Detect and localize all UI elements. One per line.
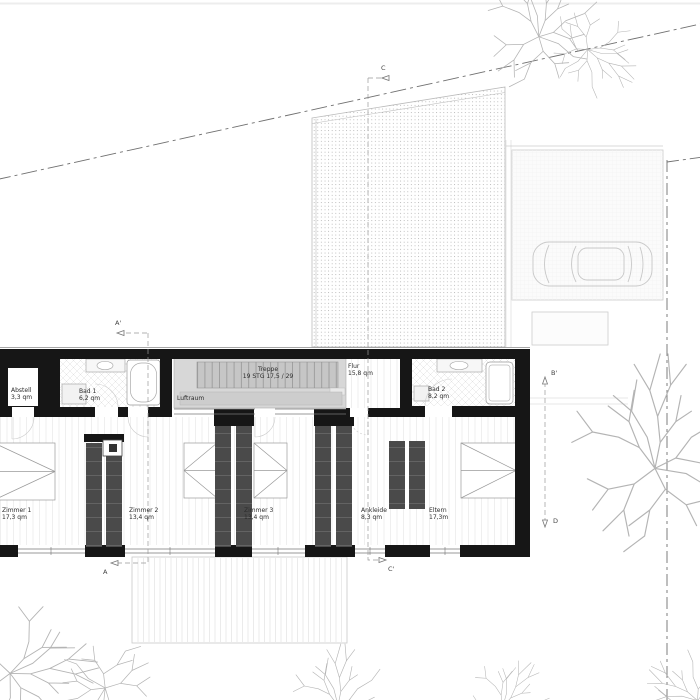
lower-terrace (132, 557, 347, 643)
tree-bottom-left-1 (0, 595, 107, 700)
tree-bottom-right (627, 638, 700, 700)
entry-canopy (532, 312, 608, 345)
bed-zimmer2 (184, 443, 217, 498)
arrow-a-top (117, 331, 124, 336)
tree-top-right (534, 0, 655, 109)
east-wall (515, 349, 530, 557)
abstell-room (8, 368, 38, 406)
floor-plan-drawing (0, 0, 700, 700)
bed-zimmer3 (254, 443, 287, 498)
tree-right-large (572, 354, 700, 552)
roof-terrace (312, 87, 505, 347)
bed-eltern (461, 443, 516, 498)
sink-bad1 (97, 361, 113, 369)
north-wall (0, 349, 530, 359)
stair-treads (197, 362, 338, 388)
tree-bottom-middle (293, 644, 380, 700)
floor-plan-page: Abstell3,3 qm Bad 16,2 qm Treppe19 STG 1… (0, 0, 700, 700)
bed-zimmer1 (0, 443, 55, 500)
flur-floor (346, 359, 400, 408)
ankleide-wardrobe-1 (389, 441, 405, 509)
arrow-c-bottom (379, 558, 386, 563)
arrow-a-bottom (111, 561, 118, 566)
shower (486, 362, 513, 404)
ankleide-wardrobe-2 (409, 441, 425, 509)
tree-bottom-center (450, 642, 560, 700)
arrow-b-up (543, 377, 548, 384)
arrow-d-down (543, 520, 548, 527)
bathtub (127, 360, 160, 405)
stair-zone (174, 357, 346, 408)
sink-bad2 (450, 361, 468, 369)
arrow-c-top (382, 76, 389, 81)
column (109, 444, 117, 452)
house (0, 348, 530, 558)
